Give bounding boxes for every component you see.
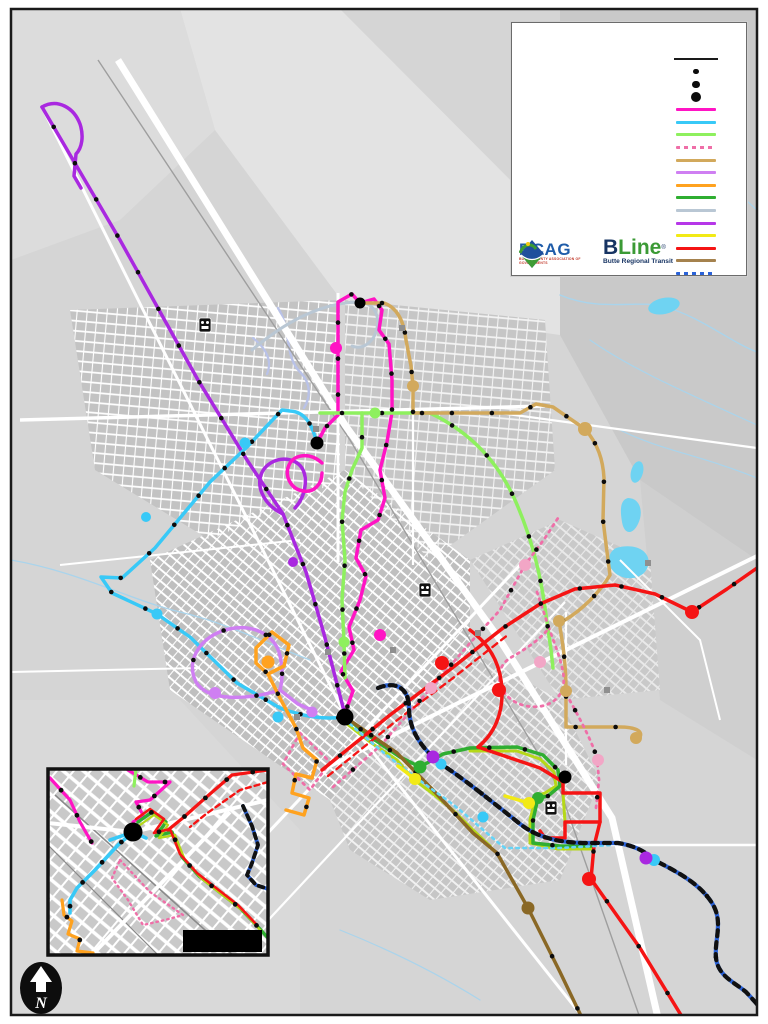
bus-stop-dot	[553, 765, 558, 770]
bus-stop-dot	[157, 829, 162, 834]
bus-stop-dot	[51, 125, 56, 130]
bus-stop-dot	[386, 735, 391, 740]
bus-stop-dot	[276, 412, 281, 417]
bus-stop-dot	[705, 894, 710, 899]
bus-stop-dot	[156, 307, 161, 312]
downtown-inset-map	[48, 769, 268, 957]
landmark-square	[390, 647, 396, 653]
bus-stop-dot	[325, 642, 330, 647]
timepoint-dot	[478, 812, 489, 823]
bus-stop-dot	[307, 421, 312, 426]
bus-stop-dot	[276, 691, 281, 696]
bus-stop-dot	[254, 693, 259, 698]
legend-panel: BCAG BUTTE COUNTY ASSOCIATION OF GOVERNM…	[511, 22, 747, 276]
magenta-route	[674, 103, 718, 116]
bus-stop-dot	[294, 727, 299, 732]
bline-logo: B Line ® Butte Regional Transit	[603, 239, 673, 265]
bus-stop-dot	[313, 602, 318, 607]
bus-stop-dot	[75, 813, 80, 818]
timepoint-dot	[288, 557, 298, 567]
bline-swoosh-icon	[519, 239, 537, 255]
bus-stop-dot	[280, 672, 285, 677]
timepoint-dot	[370, 408, 381, 419]
transfer-hub-dot	[559, 771, 572, 784]
timepoint-dot	[152, 609, 163, 620]
bus-stop-dot	[94, 197, 99, 202]
north-label: N	[34, 995, 48, 1012]
north-arrow-icon: N	[20, 962, 62, 1014]
bus-stop-dot	[263, 670, 268, 675]
bus-stop-dot	[136, 805, 141, 810]
bus-stop-dot	[354, 606, 359, 611]
bus-stop-dot	[314, 759, 319, 764]
timepoint-dot	[592, 754, 604, 766]
bus-stop-dot	[351, 767, 356, 772]
bus-stop-dot	[77, 938, 82, 943]
bus-stop-dot	[304, 805, 309, 810]
bus-stop-dot	[233, 902, 238, 907]
bus-stop-dot	[196, 493, 201, 498]
bus-stop-dot	[592, 594, 597, 599]
bus-stop-dot	[336, 392, 341, 397]
timepoint-dot	[409, 773, 421, 785]
bus-stop-dot	[575, 1006, 580, 1011]
transfer-hub-dot	[355, 298, 366, 309]
bus-stop-dot	[479, 791, 484, 796]
bus-stop-dot	[605, 899, 610, 904]
bus-stop-dot	[173, 837, 178, 842]
bus-stop-dot	[420, 411, 425, 416]
orange-route	[674, 179, 718, 192]
bus-stop-dot	[336, 320, 341, 325]
bus-stop-dot	[370, 727, 375, 732]
highway-shield-icon	[199, 318, 211, 332]
bus-stop-dot	[204, 651, 209, 656]
bus-stop-dot	[341, 672, 346, 677]
timepoint-dot	[414, 761, 427, 774]
bus-stop-dot	[345, 704, 350, 709]
bus-stop-dot	[254, 923, 259, 928]
bus-stop-dot	[89, 839, 94, 844]
black-route-line	[674, 53, 718, 66]
bus-stop-dot	[593, 749, 598, 754]
bus-stop-dot	[172, 523, 177, 528]
blue-black-dashed-route	[674, 267, 718, 280]
bus-stop-dot	[187, 863, 192, 868]
scale-bar	[183, 930, 262, 952]
bus-stop-dot	[450, 411, 455, 416]
bus-stop-dot	[509, 588, 514, 593]
bus-stop-dot	[191, 658, 196, 663]
bus-stop-dot	[550, 954, 555, 959]
purple-route	[674, 217, 718, 230]
bus-stop-dot	[149, 810, 154, 815]
bus-stop-dot	[383, 337, 388, 342]
bus-stop-dot	[222, 466, 227, 471]
bus-stop-dot	[503, 624, 508, 629]
bus-stop-dot	[380, 478, 385, 483]
bus-stop-dot	[403, 701, 408, 706]
bus-stop-dot	[221, 628, 226, 633]
bus-stop-dot	[450, 423, 455, 428]
bus-stop-dot	[487, 745, 492, 750]
bus-stop-dot	[417, 699, 422, 704]
bus-stop-dot	[550, 843, 555, 848]
bline-line: Line	[618, 239, 661, 257]
bus-stop-dot	[80, 880, 85, 885]
bus-stop-dot	[285, 523, 290, 528]
bus-stop-dot	[241, 452, 246, 457]
bus-stop-dot	[538, 579, 543, 584]
bus-stop-dot	[384, 443, 389, 448]
landmark-square	[645, 560, 651, 566]
bus-stop-dot	[342, 563, 347, 568]
red-route	[674, 242, 718, 255]
bus-stop-dot	[147, 551, 152, 556]
bus-stop-dot	[336, 356, 341, 361]
bus-stop-dot	[665, 991, 670, 996]
bus-stop-dot	[203, 796, 208, 801]
timepoint-dot	[141, 512, 151, 522]
bus-stop-dot	[285, 651, 290, 656]
landmark-square	[604, 687, 610, 693]
timepoint-dot	[425, 682, 437, 694]
timepoint-dot	[339, 637, 350, 648]
bus-stop-dot	[109, 590, 114, 595]
transfer-hub-dot	[311, 437, 324, 450]
bus-stop-dot	[481, 627, 486, 632]
bus-stop-dot	[449, 662, 454, 667]
bus-stop-dot	[163, 780, 168, 785]
bus-stop-dot	[363, 572, 368, 577]
bus-stop-dot	[100, 860, 105, 865]
bus-stop-dot	[527, 534, 532, 539]
bus-stop-dot	[437, 676, 442, 681]
highway-shield-icon	[545, 801, 557, 815]
bus-stop-dot	[59, 788, 64, 793]
bus-stop-dot	[593, 841, 598, 846]
bus-stop-dot	[601, 520, 606, 525]
bus-stop-dot	[562, 654, 567, 659]
bus-stop-dot	[510, 491, 515, 496]
bus-stop-dot	[451, 749, 456, 754]
bus-stop-dot	[65, 915, 70, 920]
bus-stop-dot	[564, 414, 569, 419]
bus-stop-dot	[595, 795, 600, 800]
legend-swatch-column	[674, 53, 718, 280]
bus-stop-dot	[138, 775, 143, 780]
bus-stop-dot	[484, 453, 489, 458]
bus-stop-dot	[340, 520, 345, 525]
bus-stop-dot	[338, 753, 343, 758]
bus-stop-dot	[591, 849, 596, 854]
bus-stop-dot	[219, 416, 224, 421]
bus-stop-dot	[545, 624, 550, 629]
timepoint-dot	[427, 751, 440, 764]
bus-stop-dot	[377, 513, 382, 518]
timepoint-dot	[534, 656, 546, 668]
bus-stop-dot	[390, 407, 395, 412]
timepoint-dot	[685, 605, 699, 619]
bus-stop-dot	[360, 435, 365, 440]
bus-stop-dot	[523, 747, 528, 752]
bus-stop-dot	[357, 539, 362, 544]
bus-stop-dot	[301, 562, 306, 567]
bus-stop-dot	[636, 944, 641, 949]
timepoint-dot	[560, 685, 572, 697]
bus-stop-dot	[714, 955, 719, 960]
bus-stop-dot	[118, 576, 123, 581]
bus-stop-dot	[175, 626, 180, 631]
blue-gray-route	[674, 204, 718, 217]
bus-stop-dot	[409, 370, 414, 375]
medium-stop-dot	[674, 78, 718, 91]
bus-stop-dot	[292, 778, 297, 783]
bus-stop-dot	[606, 559, 611, 564]
timepoint-dot	[640, 852, 653, 865]
bus-stop-dot	[224, 777, 229, 782]
cyan-route	[674, 116, 718, 129]
bus-stop-dot	[325, 424, 330, 429]
bus-stop-dot	[531, 818, 536, 823]
bus-stop-dot	[578, 586, 583, 591]
bline-b: B	[603, 239, 618, 257]
bus-stop-dot	[573, 725, 578, 730]
landmark-square	[294, 714, 300, 720]
transfer-hub-dot	[124, 823, 143, 842]
timepoint-dot	[262, 656, 275, 669]
timepoint-dot	[330, 342, 342, 354]
bus-stop-dot	[405, 695, 410, 700]
bus-stop-dot	[546, 794, 551, 799]
landmark-square	[313, 426, 319, 432]
bus-stop-dot	[358, 727, 363, 732]
green-route	[674, 192, 718, 205]
timepoint-dot	[582, 872, 596, 886]
timepoint-dot	[273, 712, 284, 723]
tan-route	[674, 154, 718, 167]
bus-stop-dot	[68, 904, 73, 909]
bus-stop-dot	[732, 582, 737, 587]
landmark-square	[475, 630, 481, 636]
timepoint-dot	[374, 629, 386, 641]
small-stop-dot	[674, 66, 718, 79]
large-stop-dot	[674, 91, 718, 104]
legend-logos: BCAG BUTTE COUNTY ASSOCIATION OF GOVERNM…	[519, 239, 673, 265]
bus-stop-dot	[388, 748, 393, 753]
timepoint-dot	[307, 707, 318, 718]
timepoint-dot	[519, 559, 531, 571]
bus-stop-dot	[411, 410, 416, 415]
bus-stop-dot	[209, 883, 214, 888]
bus-stop-dot	[115, 233, 120, 238]
bus-stop-dot	[350, 640, 355, 645]
bus-stop-dot	[380, 301, 385, 306]
transit-map-page: N BCAG BUTTE COUNTY ASSOCIATION OF GOVER…	[0, 0, 768, 1024]
bus-stop-dot	[143, 606, 148, 611]
bus-stop-dot	[349, 292, 354, 297]
bline-reg: ®	[661, 239, 665, 257]
bus-stop-dot	[389, 371, 394, 376]
yellow-route	[674, 229, 718, 242]
bus-stop-dot	[530, 830, 535, 835]
bus-stop-dot	[539, 601, 544, 606]
bus-stop-dot	[490, 411, 495, 416]
highway-shield-icon	[419, 583, 431, 597]
bus-stop-dot	[152, 794, 157, 799]
light-green-route	[674, 129, 718, 142]
bus-stop-dot	[231, 677, 236, 682]
bus-stop-dot	[470, 650, 475, 655]
timepoint-dot	[209, 687, 221, 699]
bus-stop-dot	[342, 651, 347, 656]
bus-stop-dot	[177, 343, 182, 348]
timepoint-dot	[553, 615, 565, 627]
pink-dashed-route	[674, 141, 718, 154]
bus-stop-dot	[369, 733, 374, 738]
bus-stop-dot	[573, 708, 578, 713]
bline-subtitle: Butte Regional Transit	[603, 258, 673, 265]
bus-stop-dot	[73, 161, 78, 166]
bus-stop-dot	[267, 633, 272, 638]
bus-stop-dot	[347, 476, 352, 481]
bus-stop-dot	[340, 411, 345, 416]
bus-stop-dot	[534, 547, 539, 552]
timepoint-dot	[578, 422, 592, 436]
landmark-square	[399, 325, 405, 331]
bus-stop-dot	[619, 584, 624, 589]
transfer-hub-dot	[337, 709, 354, 726]
timepoint-dot	[523, 797, 535, 809]
bus-stop-dot	[613, 725, 618, 730]
bus-stop-dot	[528, 405, 533, 410]
bus-stop-dot	[197, 380, 202, 385]
timepoint-dot	[240, 438, 251, 449]
bus-stop-dot	[660, 595, 665, 600]
timepoint-dot	[435, 656, 449, 670]
bus-stop-dot	[182, 814, 187, 819]
bus-stop-dot	[263, 697, 268, 702]
landmark-square	[325, 649, 331, 655]
timepoint-dot	[407, 380, 419, 392]
bus-stop-dot	[335, 683, 340, 688]
bus-stop-dot	[136, 270, 141, 275]
bus-stop-dot	[453, 812, 458, 817]
bus-stop-dot	[264, 487, 269, 492]
bus-stop-dot	[495, 852, 500, 857]
violet-route	[674, 166, 718, 179]
timepoint-dot	[492, 683, 506, 697]
bus-stop-dot	[593, 441, 598, 446]
timepoint-dot	[630, 732, 642, 744]
bus-stop-dot	[602, 480, 607, 485]
dark-tan-route	[674, 255, 718, 268]
bus-stop-dot	[340, 607, 345, 612]
timepoint-dot	[522, 902, 535, 915]
bus-stop-dot	[119, 840, 124, 845]
